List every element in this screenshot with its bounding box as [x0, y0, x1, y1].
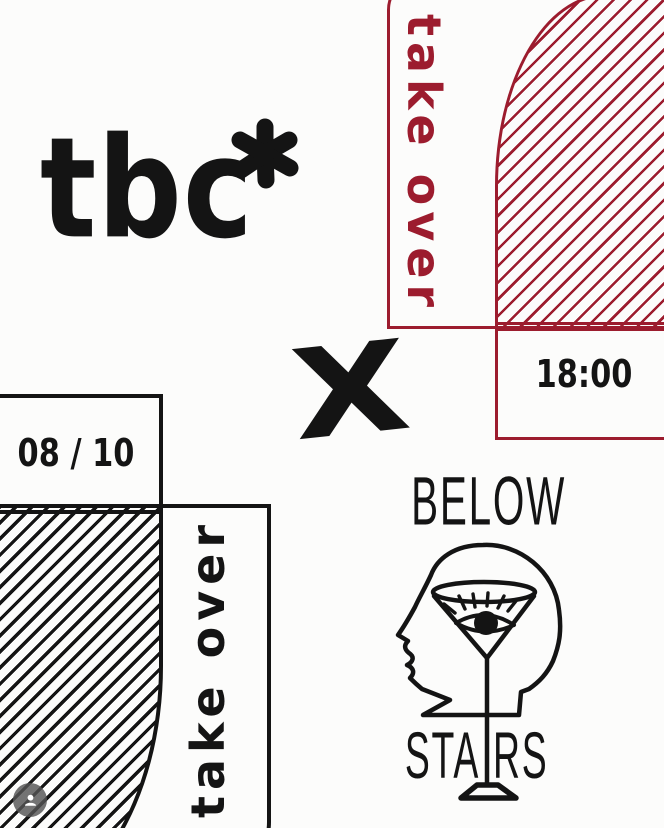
tagged-person-icon: [22, 792, 39, 809]
tagged-badge[interactable]: [13, 783, 47, 817]
asterisk-icon: [228, 112, 302, 192]
venue-word-below: BELOW: [411, 466, 545, 535]
brand-mark: tbc: [40, 116, 254, 262]
collab-x-mark: X: [286, 324, 415, 460]
poster-canvas: take over 18:00 tbc X 08 / 10 take over …: [0, 0, 664, 828]
black-takeover-label: take over: [182, 518, 236, 818]
event-date: 08 / 10: [15, 431, 137, 475]
black-hatched-arch: [0, 504, 163, 828]
event-time: 18:00: [513, 352, 655, 396]
venue-word-sta: STA: [405, 724, 478, 790]
red-takeover-label: take over: [396, 14, 450, 314]
venue-word-rs: RS: [493, 724, 553, 790]
